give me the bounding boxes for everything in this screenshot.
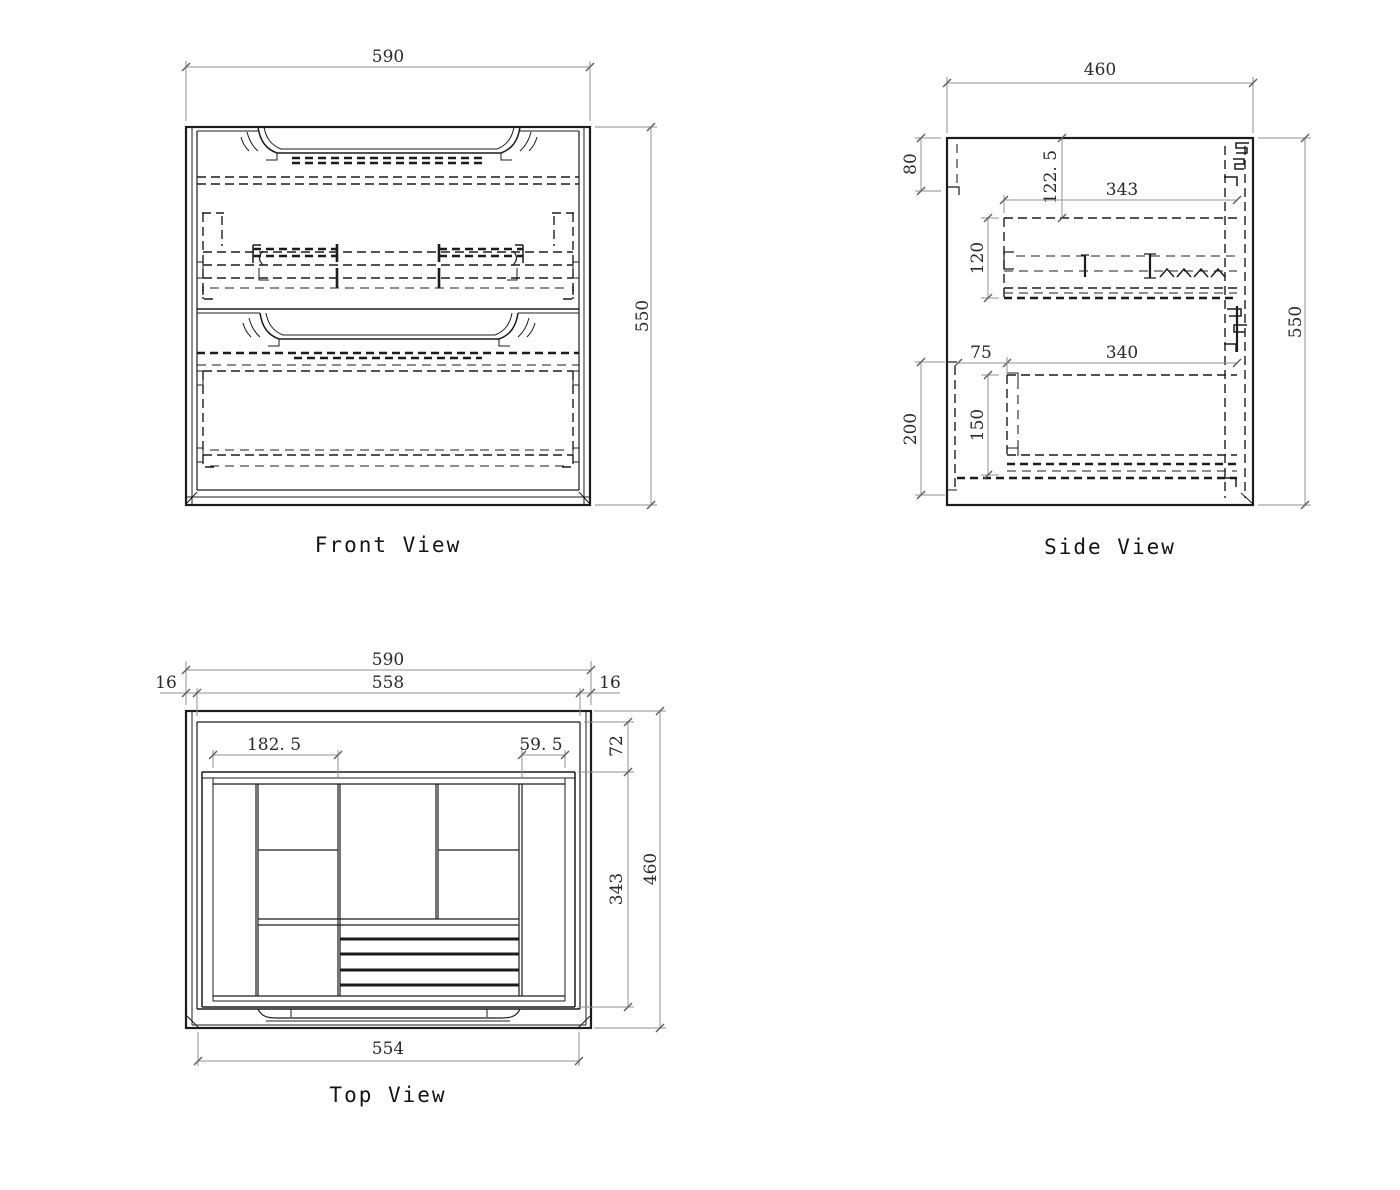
top-wall-right-dim: 16 xyxy=(599,673,621,693)
wall-bracket-top-icon xyxy=(1236,143,1249,153)
side-drawer1-height-dim: 120 xyxy=(968,242,988,274)
front-height-dim: 550 xyxy=(633,300,653,332)
side-view-label: Side View xyxy=(1044,535,1176,559)
side-view-drawing: 460 80 122. 5 343 120 xyxy=(880,30,1330,570)
top-tray-left-dim: 182. 5 xyxy=(247,735,301,755)
front-drawer1-hidden-lines xyxy=(197,177,579,299)
top-front-width-dim: 554 xyxy=(372,1039,404,1059)
front-drawer2-handle-cutout xyxy=(243,313,535,346)
zigzag-icon xyxy=(1160,269,1225,277)
side-height-dim: 550 xyxy=(1286,306,1306,338)
top-tray-depth-dim: 343 xyxy=(607,873,627,905)
top-depth-dim: 460 xyxy=(641,853,661,885)
side-width-dim: 460 xyxy=(1084,60,1116,80)
front-view-drawing: 590 550 Front View xyxy=(140,20,680,580)
side-front-gap-dim: 75 xyxy=(970,343,992,363)
drawing-sheet: 590 550 Front View xyxy=(0,0,1400,1190)
side-drawer1-hidden xyxy=(1004,218,1237,298)
side-back-notch-dim: 80 xyxy=(901,153,921,175)
top-width-dim: 590 xyxy=(372,650,404,670)
top-view-dimensions: 590 16 558 16 182. 5 59. 5 xyxy=(155,650,666,1066)
top-inner-width-dim: 558 xyxy=(372,673,404,693)
top-tray-right-dim: 59. 5 xyxy=(519,735,562,755)
side-drawer1-offset-dim: 122. 5 xyxy=(1041,150,1061,204)
wall-bracket-mid-icon xyxy=(1227,309,1241,316)
side-drawer2-depth-dim: 340 xyxy=(1106,343,1138,363)
side-view-outline xyxy=(947,138,1253,505)
top-wall-left-dim: 16 xyxy=(155,673,177,693)
top-view-organizer xyxy=(213,784,565,996)
front-width-dim: 590 xyxy=(372,47,404,67)
top-view-rack-slats xyxy=(340,939,519,985)
side-back-panel xyxy=(1224,143,1249,498)
top-view-outline xyxy=(186,711,591,1028)
side-lower-zone-dim: 200 xyxy=(901,413,921,445)
side-drawer2-hidden xyxy=(957,373,1237,478)
front-drawer2-hidden-lines xyxy=(197,353,579,467)
top-view-drawing: 590 16 558 16 182. 5 59. 5 xyxy=(140,630,690,1130)
top-view-label: Top View xyxy=(329,1083,446,1107)
side-view-dimensions: 460 80 122. 5 343 120 xyxy=(901,60,1311,509)
front-view-label: Front View xyxy=(315,533,461,557)
front-drawer1-handle-cutout xyxy=(241,127,537,163)
side-drawer1-depth-dim: 343 xyxy=(1106,180,1138,200)
side-drawer2-height-dim: 150 xyxy=(968,409,988,441)
top-back-gap-dim: 72 xyxy=(607,735,627,757)
